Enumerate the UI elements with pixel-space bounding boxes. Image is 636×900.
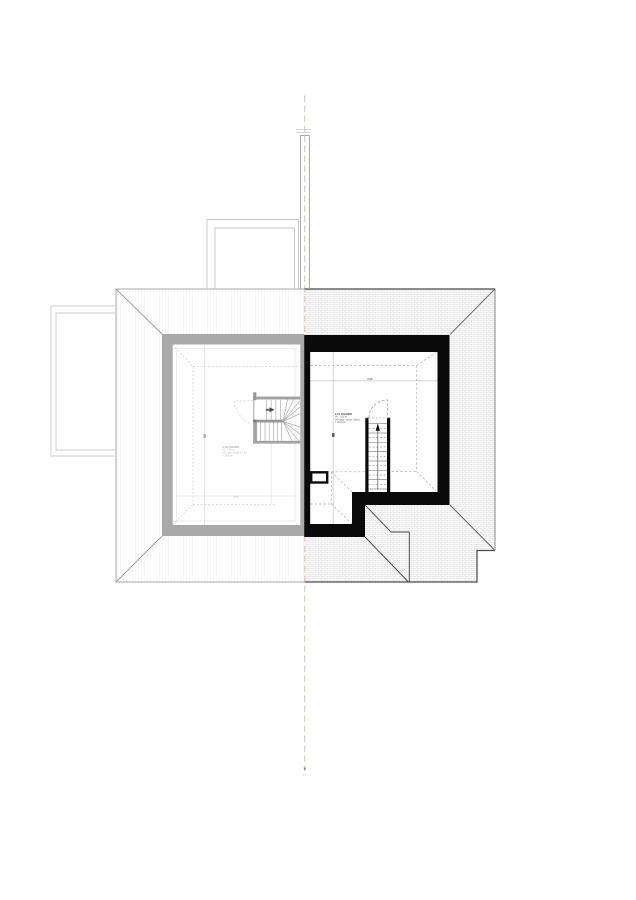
svg-text:= 30,8 m²: = 30,8 m²	[335, 421, 346, 424]
svg-text:= 30,8 m²: = 30,8 m²	[222, 454, 233, 457]
svg-text:nok: nok	[368, 377, 374, 381]
svg-text:14: 14	[303, 774, 306, 777]
svg-text:m: m	[355, 418, 357, 421]
svg-text:nok: nok	[234, 494, 239, 498]
